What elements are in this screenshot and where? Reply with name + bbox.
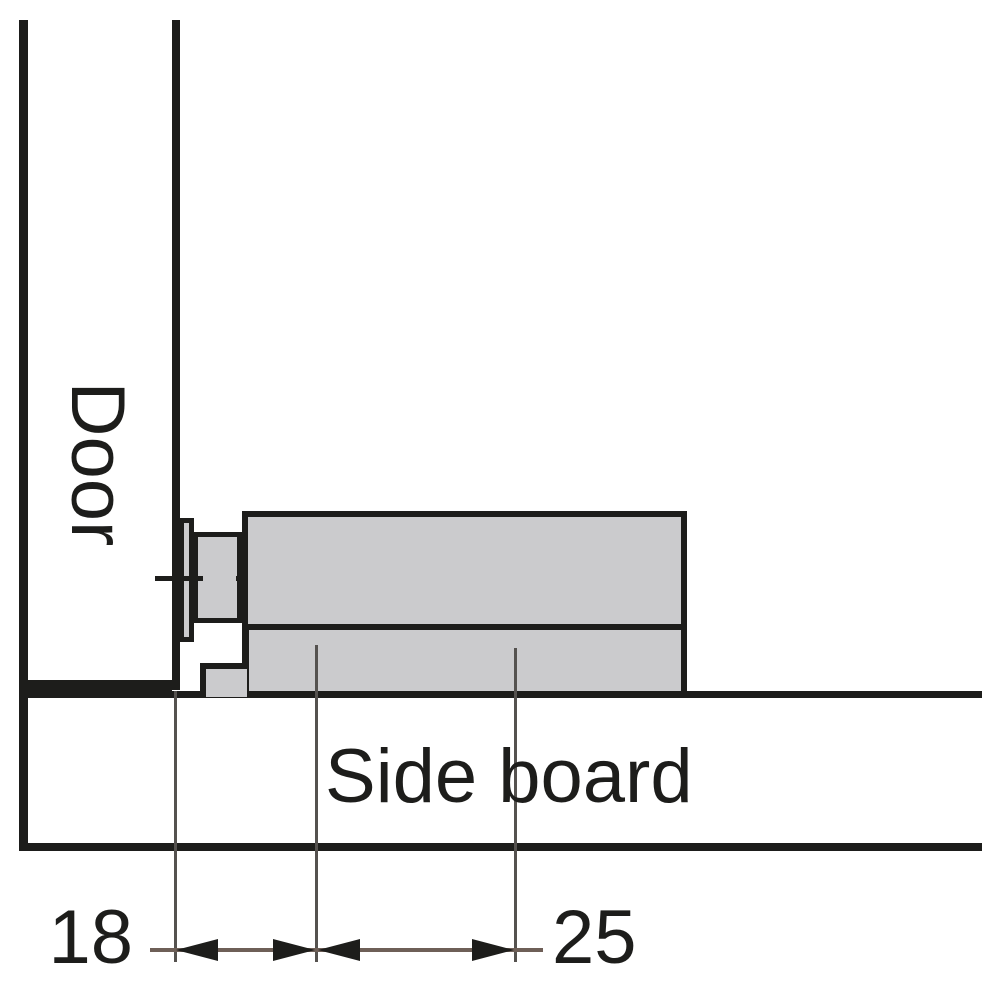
door-bottom-edge: [19, 680, 172, 691]
door-outer-face-line: [19, 20, 28, 851]
dim-18-label: 18: [0, 900, 133, 976]
diagram-canvas: 18 25 Side board Door: [0, 0, 1000, 1000]
extension-line-door-face: [174, 691, 177, 962]
side-board-label: Side board: [325, 739, 693, 815]
dim-25-arrow-right-icon: [472, 939, 514, 961]
mounting-plate-foot: [200, 663, 247, 697]
hinge-arm: [242, 511, 687, 630]
door-label: Door: [59, 382, 135, 547]
mounting-plate: [242, 630, 687, 697]
dim-18-arrow-right-icon: [273, 939, 315, 961]
hinge-centerline-tick: [236, 576, 245, 581]
dim-25-label: 25: [552, 900, 637, 976]
dim-25-arrow-left-icon: [318, 939, 360, 961]
hinge-centerline: [155, 576, 203, 581]
side-board-bottom-edge: [19, 843, 982, 851]
extension-line-dim-18: [315, 645, 318, 962]
dim-18-arrow-left-icon: [176, 939, 218, 961]
